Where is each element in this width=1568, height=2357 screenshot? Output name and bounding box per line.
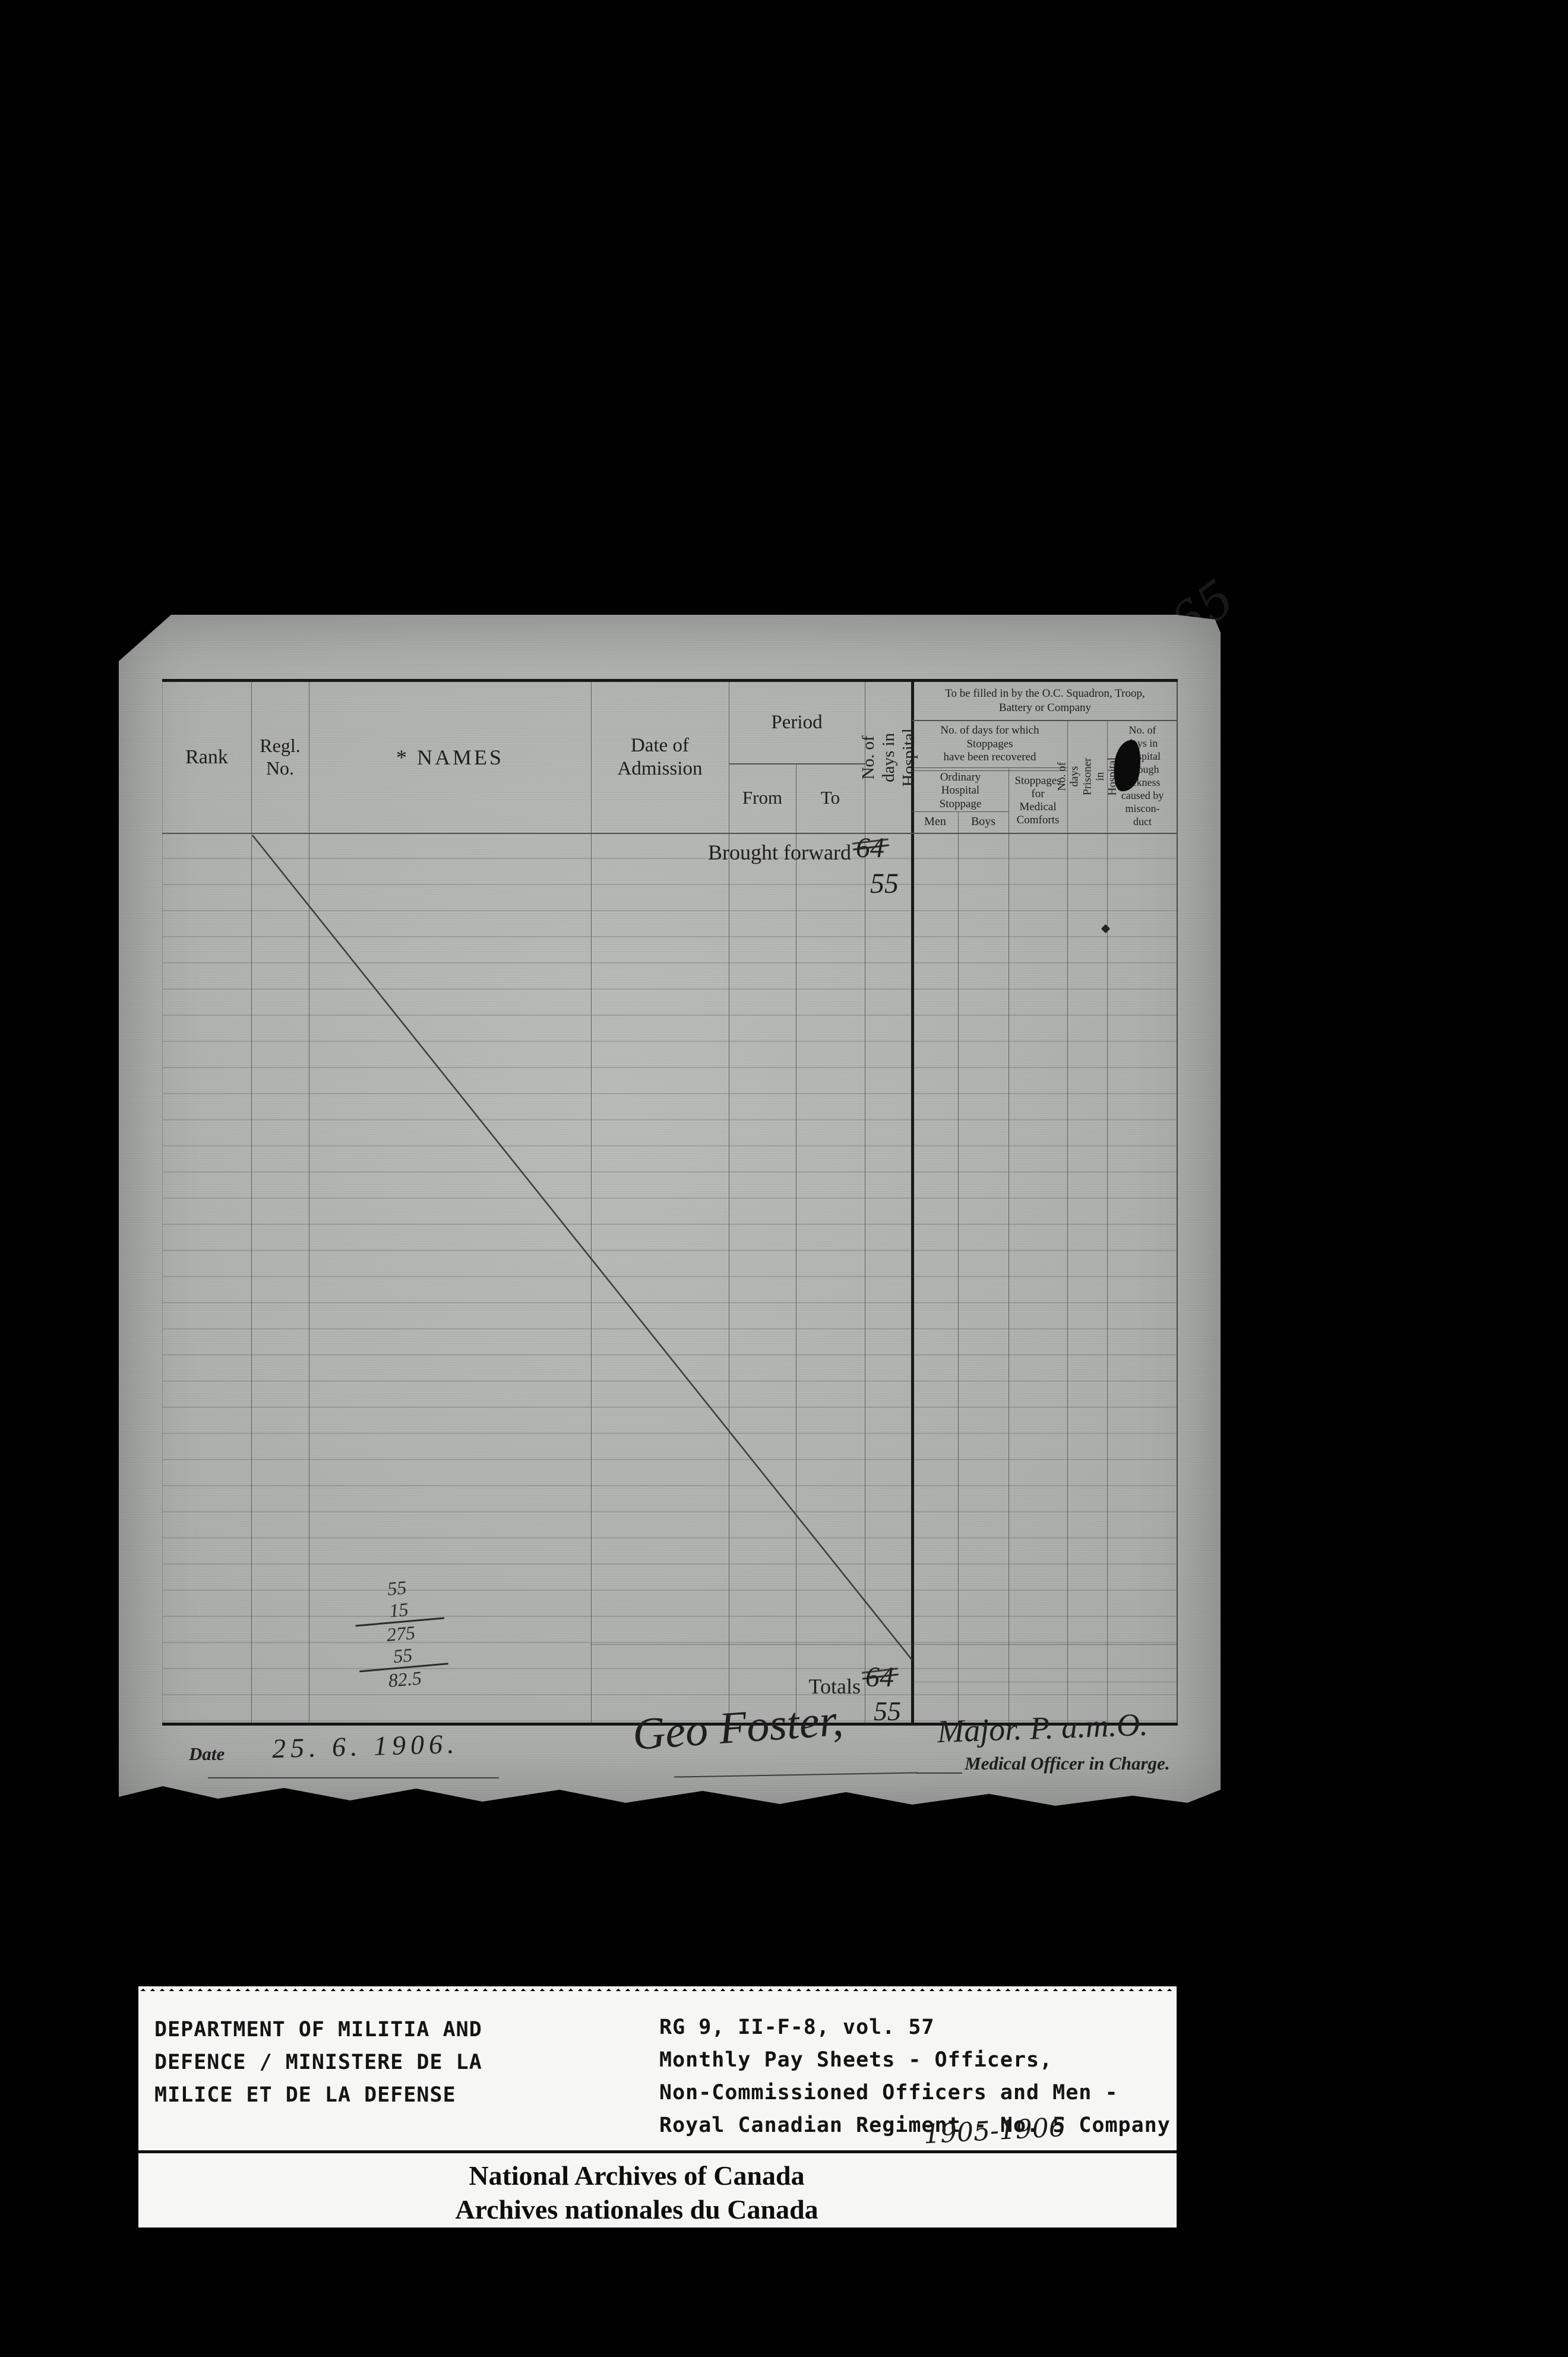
microfilm-scan: 165 [0,0,1568,2357]
signature-rank: Major. P. a.m.O. [937,1706,1148,1750]
signature-title: Medical Officer in Charge. [965,1753,1170,1774]
reference-label-line: Monthly Pay Sheets - Officers, [659,2044,1171,2077]
reference-label: RG 9, II-F-8, vol. 57 Monthly Pay Sheets… [659,2011,1171,2142]
date-label: Date [189,1743,225,1765]
document-page: Rank Regl. No. * NAMES Date of Admission… [119,615,1221,1806]
signature-underline [674,1772,918,1777]
brought-forward-value: 55 [870,867,899,900]
national-archives-line: Archives nationales du Canada [138,2192,1135,2226]
reference-label-line: Royal Canadian Regiment - No. 5 Company [659,2109,1171,2142]
totals-value: 55 [874,1695,901,1727]
date-underline [208,1777,499,1778]
national-archives-line: National Archives of Canada [138,2159,1135,2192]
brought-forward-label: Brought forward [655,838,851,867]
department-label-line: DEFENCE / MINISTERE DE LA [154,2046,482,2079]
department-label-line: MILICE ET DE LA DEFENSE [154,2079,482,2112]
pencil-calculation: 55 15 275 55 82.5 [352,1574,450,1694]
reference-label-line: Non-Commissioned Officers and Men - [659,2077,1171,2109]
brought-forward-crossed-value: 64 [856,832,884,864]
archive-label-strip: DEPARTMENT OF MILITIA AND DEFENCE / MINI… [138,1991,1177,2228]
label-divider [138,2150,1177,2153]
totals-crossed-value: 64 [865,1661,894,1693]
title-underline [916,1773,962,1774]
reference-label-line: RG 9, II-F-8, vol. 57 [659,2011,1171,2044]
department-label: DEPARTMENT OF MILITIA AND DEFENCE / MINI… [154,2014,482,2112]
department-label-line: DEPARTMENT OF MILITIA AND [154,2014,482,2046]
date-value: 25. 6. 1906. [271,1728,459,1764]
national-archives-label: National Archives of Canada Archives nat… [138,2159,1177,2226]
hospital-admissions-table: Rank Regl. No. * NAMES Date of Admission… [162,679,1178,1726]
